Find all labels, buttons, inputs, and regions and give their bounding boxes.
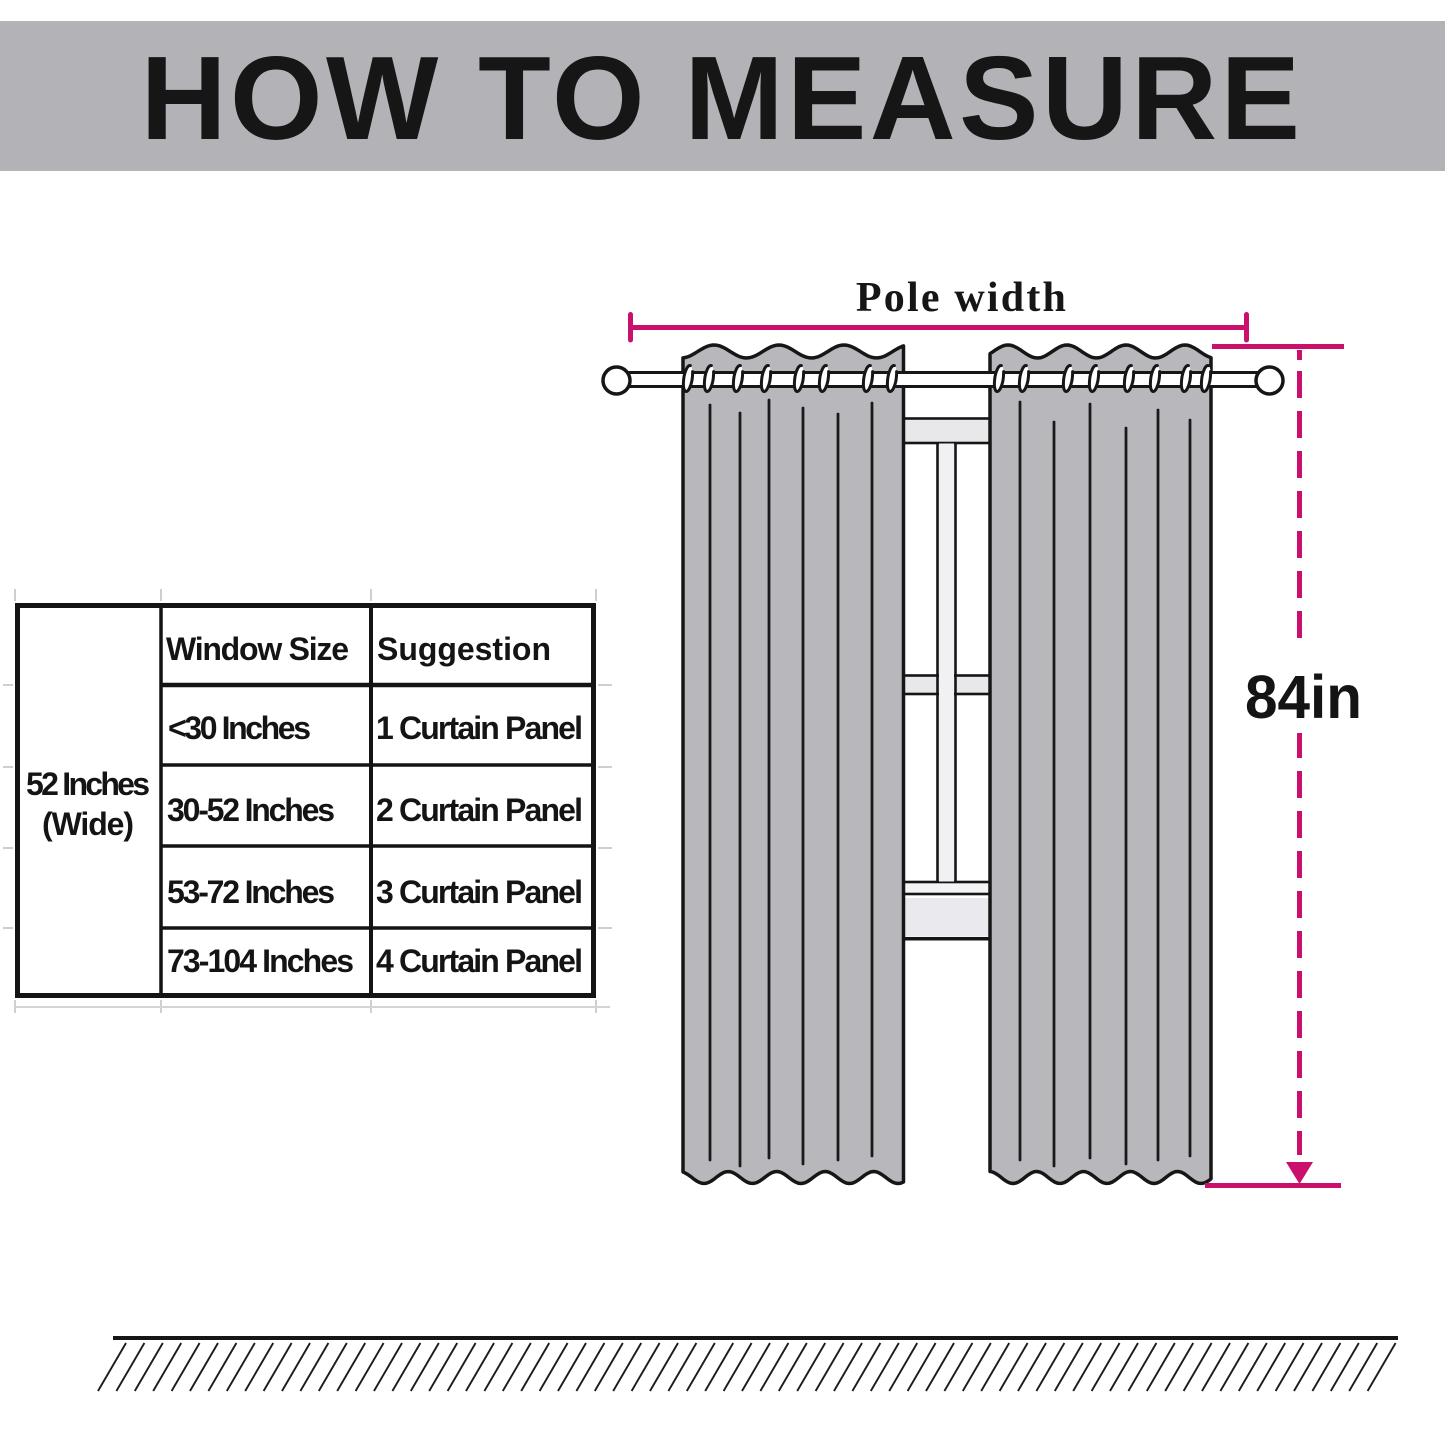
svg-text:Pole width: Pole width <box>856 275 1068 321</box>
svg-text:<30 Inches: <30 Inches <box>168 710 311 746</box>
svg-text:1 Curtain Panel: 1 Curtain Panel <box>376 710 583 746</box>
svg-text:Window Size: Window Size <box>166 631 349 667</box>
svg-text:30-52 Inches: 30-52 Inches <box>167 792 335 828</box>
svg-text:2 Curtain Panel: 2 Curtain Panel <box>376 792 583 828</box>
svg-text:52 Inches: 52 Inches <box>26 766 150 802</box>
svg-text:HOW TO MEASURE: HOW TO MEASURE <box>141 32 1304 165</box>
svg-text:73-104 Inches: 73-104 Inches <box>167 943 354 979</box>
svg-text:4 Curtain Panel: 4 Curtain Panel <box>376 943 583 979</box>
svg-text:3 Curtain Panel: 3 Curtain Panel <box>376 874 583 910</box>
svg-text:84in: 84in <box>1245 663 1362 731</box>
svg-text:(Wide): (Wide) <box>42 806 134 842</box>
svg-text:Suggestion: Suggestion <box>377 631 551 667</box>
svg-text:53-72 Inches: 53-72 Inches <box>167 874 335 910</box>
